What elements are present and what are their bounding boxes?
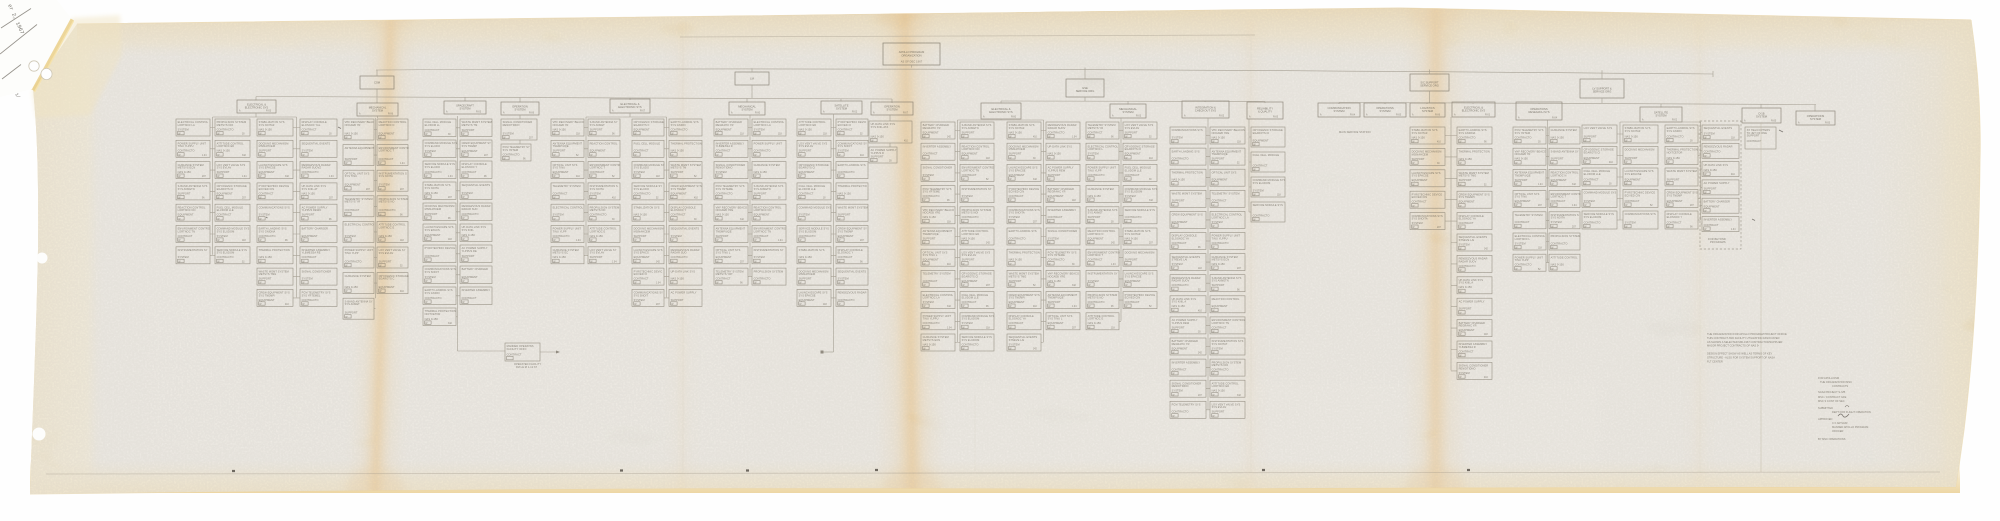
svg-text:RADAR SUO: RADAR SUO — [671, 251, 687, 255]
svg-text:TNEMPIUQE: TNEMPIUQE — [1515, 173, 1531, 177]
svg-text:ELECTRICAL &: ELECTRICAL & — [991, 107, 1010, 111]
svg-text:OFFICER: OFFICER — [1832, 429, 1844, 433]
svg-text:SYS GNIDN: SYS GNIDN — [1667, 129, 1682, 133]
svg-text:SYS NOITAZ: SYS NOITAZ — [259, 123, 275, 127]
svg-text:STABILIZATION SYS: STABILIZATION SYS — [799, 248, 825, 252]
svg-text:STNEVE LAI: STNEVE LAI — [1172, 258, 1188, 262]
svg-text:SYS EVLAV: SYS EVLAV — [590, 251, 605, 255]
svg-text:NAS 9-150: NAS 9-150 — [1009, 258, 1023, 262]
svg-text:SYS NOITAZ: SYS NOITAZ — [1125, 232, 1141, 236]
svg-text:GUIDANCE SYSTEM: GUIDANCE SYSTEM — [1088, 187, 1114, 191]
svg-text:TNEMPIUQE: TNEMPIUQE — [553, 144, 569, 148]
svg-text:SUPPORT: SUPPORT — [1009, 279, 1022, 283]
svg-text:SUPPORT: SUPPORT — [1212, 410, 1225, 414]
svg-text:SYSTEM: SYSTEM — [838, 149, 849, 153]
svg-text:EQUIPMENT: EQUIPMENT — [634, 127, 650, 131]
svg-text:R-06: R-06 — [388, 114, 394, 116]
svg-text:SYSTEM: SYSTEM — [754, 255, 765, 259]
svg-text:AC POWER SUPPLY: AC POWER SUPPLY — [1704, 181, 1730, 185]
svg-text:METSYS NO: METSYS NO — [1088, 296, 1104, 300]
svg-text:SUPPORT: SUPPORT — [590, 127, 603, 131]
svg-text:EQUIPMENT: EQUIPMENT — [553, 170, 569, 174]
svg-text:SYSTEM: SYSTEM — [425, 149, 436, 153]
svg-text:SYSTEM: SYSTEM — [886, 108, 898, 112]
svg-text:SYS ANNET: SYS ANNET — [345, 302, 361, 306]
svg-text:MAJOR PROJECT CONTRACTS OF NAS: MAJOR PROJECT CONTRACTS OF NAS 9- — [1707, 344, 1759, 348]
svg-text:EQUIPMENT: EQUIPMENT — [1125, 152, 1141, 156]
svg-text:CONTRACTO: CONTRACTO — [1704, 150, 1721, 154]
svg-text:C F ARTHUR: C F ARTHUR — [1832, 421, 1848, 425]
svg-text:CONTRACTO: CONTRACTO — [217, 127, 234, 131]
svg-text:SYSTEM: SYSTEM — [838, 277, 849, 281]
svg-text:LORTNOC T: LORTNOC T — [590, 166, 606, 170]
svg-text:1.04: 1.04 — [400, 163, 405, 165]
svg-text:LORTNOC N: LORTNOC N — [1088, 232, 1104, 236]
svg-text:MSINAHCEM: MSINAHCEM — [1009, 147, 1025, 151]
svg-text:SYSTEM: SYSTEM — [1412, 221, 1423, 225]
svg-text:SYSTEM: SYSTEM — [923, 173, 934, 177]
svg-text:1.04: 1.04 — [1111, 264, 1116, 266]
svg-text:CONTRACT: CONTRACT — [1515, 220, 1530, 224]
svg-text:DOCKING MECHANISM: DOCKING MECHANISM — [1625, 148, 1655, 152]
svg-text:MAIN SERVICE STATION: MAIN SERVICE STATION — [1339, 130, 1371, 134]
svg-text:SYS GNIDN: SYS GNIDN — [425, 291, 440, 295]
svg-text:ELUDOM LLE: ELUDOM LLE — [1125, 168, 1142, 172]
svg-text:THERMAL PROTECTION: THERMAL PROTECTION — [259, 248, 290, 252]
svg-text:NAS 9-150: NAS 9-150 — [1625, 134, 1639, 138]
svg-text:STNEVE LAI: STNEVE LAI — [1459, 238, 1475, 242]
svg-text:CONTRACT: CONTRACT — [1009, 321, 1024, 325]
svg-text:ELUDOM LLE: ELUDOM LLE — [217, 208, 234, 212]
svg-text:SUPPORT: SUPPORT — [1212, 283, 1225, 287]
svg-text:SYS EVLAV: SYS EVLAV — [962, 253, 977, 257]
svg-text:NAS 9-150: NAS 9-150 — [1172, 304, 1186, 308]
svg-text:SERVICE ORG: SERVICE ORG — [1420, 84, 1439, 88]
svg-text:DOCKING MECHANISM: DOCKING MECHANISM — [1125, 250, 1155, 254]
svg-text:OPTICAL UNIT SYS: OPTICAL UNIT SYS — [1212, 170, 1237, 174]
svg-text:METSYS NOI: METSYS NOI — [217, 123, 234, 127]
svg-text:SUPPORT: SUPPORT — [716, 234, 729, 238]
svg-text:CONTRACT: CONTRACT — [838, 255, 853, 259]
svg-text:1.04: 1.04 — [1731, 229, 1736, 231]
svg-text:CONTRACTO: CONTRACTO — [178, 149, 195, 153]
svg-text:SYSTEM: SYSTEM — [634, 170, 645, 174]
svg-text:SYS TINU L: SYS TINU L — [923, 253, 938, 257]
svg-text:R-07: R-07 — [640, 111, 646, 113]
svg-text:EQUIPMENT: EQUIPMENT — [716, 127, 732, 131]
svg-text:NOCAEB YRE: NOCAEB YRE — [1212, 131, 1230, 135]
svg-text:YLPPUS REW: YLPPUS REW — [1048, 168, 1066, 172]
svg-text:CONTRACTO: CONTRACTO — [1212, 368, 1229, 372]
svg-text:1.04: 1.04 — [242, 176, 247, 178]
svg-text:R-06: R-06 — [529, 113, 535, 115]
svg-text:SYS NOITA: SYS NOITA — [379, 174, 393, 178]
svg-text:SUPPORT: SUPPORT — [671, 170, 684, 174]
svg-text:SUPPORT: SUPPORT — [1459, 178, 1472, 182]
svg-text:SYS EVLAV: SYS EVLAV — [799, 144, 814, 148]
svg-text:SYS NOITA: SYS NOITA — [590, 187, 604, 191]
svg-text:SYS ELUDO: SYS ELUDO — [425, 144, 440, 148]
svg-text:NAS 9-150: NAS 9-150 — [1048, 279, 1062, 283]
svg-text:LORTNOC NO: LORTNOC NO — [178, 208, 196, 212]
svg-text:LORTNOC T: LORTNOC T — [379, 149, 395, 153]
svg-text:NAS 9-150: NAS 9-150 — [838, 191, 852, 195]
svg-text:EQUIPMENT: EQUIPMENT — [345, 183, 361, 187]
svg-text:METSYS YRT: METSYS YRT — [716, 272, 734, 276]
svg-text:CONTRACTO: CONTRACTO — [634, 191, 651, 195]
svg-text:EQUIPMENT: EQUIPMENT — [1412, 178, 1428, 182]
svg-text:SYSTEM: SYSTEM — [1379, 109, 1391, 113]
svg-text:SYS ANNETN: SYS ANNETN — [178, 187, 195, 191]
svg-text:R-04: R-04 — [1350, 115, 1356, 117]
svg-text:EGAROTS CI: EGAROTS CI — [1253, 131, 1270, 135]
svg-text:GUIDANCE SYSTEM: GUIDANCE SYSTEM — [754, 163, 780, 167]
svg-text:SYS TINU L: SYS TINU L — [1048, 317, 1063, 321]
svg-text:CONTRACT: CONTRACT — [1625, 199, 1640, 203]
svg-text:NAS 9-150: NAS 9-150 — [671, 277, 685, 281]
svg-text:NAS 9-150: NAS 9-150 — [1515, 157, 1529, 161]
svg-text:SUPPORT: SUPPORT — [1584, 134, 1597, 138]
svg-text:SYS TINU: SYS TINU — [1515, 195, 1528, 199]
svg-text:INVERTER ASSEMBLY: INVERTER ASSEMBLY — [1704, 218, 1733, 222]
svg-text:EGAROTS CI: EGAROTS CI — [962, 274, 979, 278]
svg-text:MECHANICAL: MECHANICAL — [1119, 107, 1137, 111]
svg-text:THE ORGANIZATION FOR APOLLO PR: THE ORGANIZATION FOR APOLLO PROGRAM PROJ… — [1707, 332, 1787, 336]
svg-text:CONTRACT: CONTRACT — [507, 352, 522, 356]
svg-text:PROGRAMS: PROGRAMS — [1710, 240, 1726, 244]
svg-text:THIS CONTRACT AND FACILITY UTI: THIS CONTRACT AND FACILITY UTILIZATION A… — [1707, 336, 1780, 340]
svg-text:EQUIPMENT: EQUIPMENT — [302, 234, 318, 238]
svg-text:1.04: 1.04 — [202, 155, 207, 157]
svg-text:TINU YLPPU: TINU YLPPU — [178, 144, 194, 148]
svg-text:SUPPORT: SUPPORT — [1667, 177, 1680, 181]
svg-text:SYSTEM: SYSTEM — [1422, 109, 1434, 113]
svg-text:CONTRACTO: CONTRACTO — [923, 321, 940, 325]
svg-text:METSYS ECN: METSYS ECN — [178, 166, 196, 170]
svg-text:SYS TNEMP: SYS TNEMP — [1667, 193, 1683, 197]
svg-text:NOCAEB YRE: NOCAEB YRE — [1048, 274, 1066, 278]
svg-text:SYS KNIL A: SYS KNIL A — [1172, 300, 1187, 304]
svg-text:SYS NOITA: SYS NOITA — [425, 186, 439, 190]
svg-text:NAS 9-150: NAS 9-150 — [345, 131, 359, 135]
svg-text:CONTRACT: CONTRACT — [425, 128, 440, 132]
svg-text:SYS SNOIT: SYS SNOIT — [425, 270, 440, 274]
svg-text:CONTRACTO: CONTRACTO — [671, 255, 688, 259]
svg-text:METSYS YR: METSYS YR — [1088, 126, 1104, 130]
svg-text:REGRAHC YR: REGRAHC YR — [716, 123, 734, 127]
svg-text:SYSTEM: SYSTEM — [1172, 262, 1183, 266]
svg-text:SERVICE ORG: SERVICE ORG — [1076, 89, 1095, 93]
svg-text:NAS 9-150: NAS 9-150 — [462, 233, 476, 237]
svg-text:ELUDOM LLE: ELUDOM LLE — [962, 296, 979, 300]
svg-text:WASTE MGMT SYSTEM: WASTE MGMT SYSTEM — [838, 205, 868, 209]
svg-text:EQUIPMENT: EQUIPMENT — [1088, 236, 1104, 240]
svg-text:& QUALITY: & QUALITY — [1258, 110, 1272, 114]
svg-text:LORTNOC TN: LORTNOC TN — [962, 168, 980, 172]
svg-text:TINU YLPPU: TINU YLPPU — [923, 317, 939, 321]
svg-text:SYS EPACSE: SYS EPACSE — [1625, 172, 1642, 176]
svg-text:CONTRACT: CONTRACT — [1125, 173, 1140, 177]
svg-text:SUPPORT: SUPPORT — [1172, 199, 1185, 203]
svg-text:EQUIPMENT: EQUIPMENT — [1212, 304, 1228, 308]
svg-text:TNEMPIUQE: TNEMPIUQE — [1048, 296, 1064, 300]
svg-text:1.04: 1.04 — [778, 240, 783, 242]
svg-text:METSYS ECN: METSYS ECN — [923, 338, 941, 342]
svg-text:METSYS TMG: METSYS TMG — [1459, 174, 1477, 178]
svg-text:NAS 9-150: NAS 9-150 — [1212, 135, 1226, 139]
svg-text:SYSTEM: SYSTEM — [514, 108, 526, 112]
svg-text:LORTNOC LA: LORTNOC LA — [178, 123, 195, 127]
svg-text:LORTNOC TN: LORTNOC TN — [1212, 321, 1230, 325]
svg-text:COMMAND MODULE SYS: COMMAND MODULE SYS — [799, 205, 832, 209]
svg-text:WASTE MGMT SYSTEM: WASTE MGMT SYSTEM — [1667, 169, 1697, 173]
svg-text:YLBMESSA R: YLBMESSA R — [1459, 345, 1476, 349]
svg-text:TINU YLPPU: TINU YLPPU — [1212, 236, 1228, 240]
svg-text:TINU YLPP: TINU YLPP — [1088, 168, 1102, 172]
svg-text:SYSTEM: SYSTEM — [754, 127, 765, 131]
svg-text:SYSTEM: SYSTEM — [1088, 152, 1099, 156]
svg-text:SUPPORT: SUPPORT — [671, 298, 684, 302]
svg-text:SUPPORT: SUPPORT — [1704, 186, 1717, 190]
svg-text:PYROTECHNIC DEVICE: PYROTECHNIC DEVICE — [425, 246, 456, 250]
svg-text:APOLLO PROGRAM: APOLLO PROGRAM — [899, 50, 925, 54]
svg-text:SYS ANNETN: SYS ANNETN — [754, 187, 771, 191]
svg-text:THERMAL PROTECTION: THERMAL PROTECTION — [671, 142, 702, 146]
svg-text:SYS EPACSE: SYS EPACSE — [1412, 174, 1429, 178]
svg-text:SYS ELUDO: SYS ELUDO — [425, 165, 440, 169]
svg-text:ELOSNOC Y: ELOSNOC Y — [838, 251, 854, 255]
svg-text:EQUIPMENT: EQUIPMENT — [754, 213, 770, 217]
svg-text:CONTRACTO: CONTRACTO — [1515, 135, 1532, 139]
svg-text:R-03: R-03 — [476, 112, 482, 114]
svg-text:SYSTEM: SYSTEM — [1088, 279, 1099, 283]
svg-text:METSYS TM: METSYS TM — [462, 123, 478, 127]
svg-text:FLT CENTER: FLT CENTER — [1707, 359, 1723, 363]
svg-text:CONTRACTO: CONTRACTO — [799, 234, 816, 238]
svg-text:SUPPORT: SUPPORT — [1009, 152, 1022, 156]
svg-text:R-05: R-05 — [1396, 115, 1402, 117]
svg-text:POWER SUPPLY UNIT: POWER SUPPLY UNIT — [754, 142, 783, 146]
svg-text:TNEMPIUQE: TNEMPIUQE — [923, 232, 939, 236]
svg-text:TINU YLPP: TINU YLPP — [1515, 258, 1529, 262]
svg-text:EQUIPMENT: EQUIPMENT — [1172, 346, 1188, 350]
svg-text:EQUIPMENT: EQUIPMENT — [379, 285, 395, 289]
svg-text:ANTENNA EQUIPMENT: ANTENNA EQUIPMENT — [345, 146, 375, 150]
svg-text:S-BAND ANTENNA SY: S-BAND ANTENNA SY — [1551, 149, 1579, 153]
svg-text:ELOSNOC Y: ELOSNOC Y — [1667, 215, 1683, 219]
svg-text:RADAR SUO: RADAR SUO — [462, 207, 478, 211]
svg-text:REGRAHC YR: REGRAHC YR — [1459, 324, 1477, 328]
svg-text:CONTRACTO: CONTRACTO — [1212, 241, 1229, 245]
svg-text:ECIVED CIN: ECIVED CIN — [1625, 193, 1641, 197]
svg-text:EQUIPMENT: EQUIPMENT — [1667, 199, 1683, 203]
svg-text:NAS 9-150: NAS 9-150 — [1667, 156, 1681, 160]
svg-text:EGAROTS CI: EGAROTS CI — [217, 187, 234, 191]
svg-text:EQUIPMENT: EQUIPMENT — [1584, 156, 1600, 160]
svg-text:SYSTEM: SYSTEM — [1009, 342, 1020, 346]
svg-text:TELEMETRY SYSTEM: TELEMETRY SYSTEM — [553, 184, 581, 188]
svg-text:PROPULSION SYSTEM: PROPULSION SYSTEM — [1551, 234, 1581, 238]
svg-text:SUPPORT: SUPPORT — [962, 258, 975, 262]
svg-text:RENOITIDNO: RENOITIDNO — [1459, 366, 1476, 370]
svg-text:NAS 9-150: NAS 9-150 — [259, 127, 273, 131]
svg-text:EQUIPMENT: EQUIPMENT — [178, 213, 194, 217]
svg-text:CONTRACTO: CONTRACTO — [671, 127, 688, 131]
svg-text:SUPPORT: SUPPORT — [259, 277, 272, 281]
svg-text:CONTRACT: CONTRACT — [553, 191, 568, 195]
svg-text:ECIVED CI: ECIVED CI — [838, 123, 852, 127]
svg-text:ELUDOM LLE: ELUDOM LLE — [1584, 172, 1601, 176]
svg-text:SYSTEM: SYSTEM — [425, 275, 436, 279]
svg-text:CONTRACTO: CONTRACTO — [217, 255, 234, 259]
svg-text:STNEVE LAI: STNEVE LAI — [1009, 338, 1025, 342]
svg-text:LORTNOC NO: LORTNOC NO — [962, 147, 980, 151]
svg-text:CONTRACT: CONTRACT — [1459, 221, 1474, 225]
svg-text:SYS ELUDO: SYS ELUDO — [634, 166, 649, 170]
svg-text:SYS SNOIT: SYS SNOIT — [838, 144, 853, 148]
svg-text:ELUDOM LL: ELUDOM LL — [425, 123, 441, 127]
svg-text:CONTRACTO: CONTRACTO — [754, 277, 771, 281]
svg-text:RENOITIDNO: RENOITIDNO — [1172, 384, 1189, 388]
svg-text:SUPPORT: SUPPORT — [259, 149, 272, 153]
svg-text:CONTRACTO: CONTRACTO — [962, 342, 979, 346]
svg-text:R-05: R-05 — [1825, 123, 1831, 125]
svg-text:SYSTEM: SYSTEM — [923, 300, 934, 304]
svg-text:SYS ELUDOM: SYS ELUDOM — [962, 317, 980, 321]
svg-text:LORTNOC L: LORTNOC L — [1088, 147, 1104, 151]
svg-text:SYS YRTEM: SYS YRTEM — [1515, 131, 1531, 135]
svg-text:1.04: 1.04 — [656, 283, 661, 285]
svg-text:NAS 9-150: NAS 9-150 — [1125, 236, 1139, 240]
svg-text:EQUIPMENT: EQUIPMENT — [838, 234, 854, 238]
svg-text:RENOITIDNO: RENOITIDNO — [716, 166, 733, 170]
svg-text:CONTRACTO: CONTRACTO — [425, 296, 442, 300]
svg-text:CONTRACT: CONTRACT — [1747, 139, 1762, 143]
svg-text:SYSTEM: SYSTEM — [1810, 117, 1822, 121]
svg-text:CONTRACT: CONTRACT — [178, 234, 193, 238]
svg-text:TINU YLPP: TINU YLPP — [345, 251, 359, 255]
svg-text:SYS EVLAV: SYS EVLAV — [217, 166, 232, 170]
svg-text:NAS 9-150: NAS 9-150 — [345, 285, 359, 289]
svg-text:METSYS NOI: METSYS NOI — [1212, 363, 1229, 367]
svg-text:MANNED APOLLO PROGRAM: MANNED APOLLO PROGRAM — [1832, 425, 1868, 429]
svg-text:EGAROTS CI: EGAROTS CI — [799, 166, 816, 170]
svg-text:MSINAHCEM: MSINAHCEM — [1412, 152, 1428, 156]
svg-text:CONTRACT: CONTRACT — [590, 170, 605, 174]
svg-text:SYSTEM: SYSTEM — [1172, 135, 1183, 139]
svg-text:R-02: R-02 — [852, 112, 858, 114]
svg-text:CONTRACT: CONTRACT — [1253, 163, 1268, 167]
svg-text:SEQUENTIAL EVENTS: SEQUENTIAL EVENTS — [462, 183, 491, 187]
svg-text:EQUIPMENT: EQUIPMENT — [634, 255, 650, 259]
svg-text:ELOSNOC YA: ELOSNOC YA — [1459, 217, 1477, 221]
svg-text:SUBMITTED: SUBMITTED — [1818, 406, 1833, 410]
svg-text:1.04: 1.04 — [1572, 205, 1577, 207]
svg-text:1.04: 1.04 — [1072, 137, 1077, 139]
svg-text:EQUIPMENT: EQUIPMENT — [1704, 205, 1720, 209]
svg-text:AS SHOWN A SELECTED MID-1967 C: AS SHOWN A SELECTED MID-1967 CONTRACTOR/… — [1707, 340, 1782, 344]
svg-text:FUEL CELL MODULE: FUEL CELL MODULE — [1253, 153, 1280, 157]
svg-text:APPROVED: APPROVED — [1818, 417, 1833, 421]
svg-text:RADAR SUOVZ: RADAR SUOVZ — [302, 166, 322, 170]
svg-text:LORTNOC ED: LORTNOC ED — [217, 144, 235, 148]
svg-text:EQUIPMENT: EQUIPMENT — [1459, 200, 1475, 204]
svg-text:CONTRACT: CONTRACT — [1704, 223, 1719, 227]
svg-text:SUPPORT: SUPPORT — [302, 213, 315, 217]
svg-text:ELOSNOC YA: ELOSNOC YA — [1172, 236, 1190, 240]
svg-text:CONTRACTO: CONTRACTO — [716, 191, 733, 195]
svg-text:SYS TINU: SYS TINU — [345, 174, 358, 178]
svg-text:CONTRACT: CONTRACT — [1048, 215, 1063, 219]
svg-text:NAS 9-150: NAS 9-150 — [716, 213, 730, 217]
svg-text:ELUDOM LLE: ELUDOM LLE — [799, 187, 816, 191]
svg-text:EGAROTS CI: EGAROTS CI — [1125, 147, 1142, 151]
svg-text:NAS 9-150: NAS 9-150 — [1212, 262, 1226, 266]
svg-text:METSYS NO: METSYS NO — [590, 208, 606, 212]
svg-text:NAS 9-150: NAS 9-150 — [1009, 130, 1023, 134]
svg-text:THERMAL PROTECTION: THERMAL PROTECTION — [1009, 250, 1040, 254]
svg-text:CSM: CSM — [374, 81, 381, 85]
svg-text:CONTRACT: CONTRACT — [923, 279, 938, 283]
svg-text:CONTRACT: CONTRACT — [1412, 200, 1427, 204]
svg-text:SEQUENTIAL EVENTS: SEQUENTIAL EVENTS — [1704, 126, 1733, 130]
svg-text:NAS 9-150: NAS 9-150 — [923, 342, 937, 346]
svg-text:SYS EPACSE: SYS EPACSE — [799, 293, 816, 297]
svg-text:SERVICE MODULE SYS: SERVICE MODULE SYS — [1253, 203, 1284, 207]
svg-text:NAS 9-150: NAS 9-150 — [1551, 135, 1565, 139]
svg-text:SYS ELUDOM: SYS ELUDOM — [217, 229, 235, 233]
svg-text:ELOSNOC Y: ELOSNOC Y — [671, 208, 687, 212]
svg-text:CONTRACTO: CONTRACTO — [302, 170, 319, 174]
svg-text:FUEL CELL MODULE: FUEL CELL MODULE — [634, 142, 661, 146]
svg-text:SUPPORT: SUPPORT — [462, 128, 475, 132]
svg-text:REGRAHC YR: REGRAHC YR — [1172, 342, 1190, 346]
svg-text:METSYS ECN: METSYS ECN — [1212, 258, 1230, 262]
svg-text:SUPPORT: SUPPORT — [379, 259, 392, 263]
svg-text:SYS YRTEME: SYS YRTEME — [923, 190, 941, 194]
svg-text:METSYS TMG: METSYS TMG — [259, 272, 277, 276]
svg-text:EQUIPMENT: EQUIPMENT — [1253, 138, 1269, 142]
svg-text:CONTRACT: CONTRACT — [716, 149, 731, 153]
svg-text:ATTITUDE CONTROL: ATTITUDE CONTROL — [1551, 255, 1579, 259]
svg-text:EQUIPMENT: EQUIPMENT — [1459, 328, 1475, 332]
svg-text:SYSTEM: SYSTEM — [302, 149, 313, 153]
svg-text:SYSTEM: SYSTEM — [1459, 242, 1470, 246]
svg-text:WASTE MGMT SYSTEM: WASTE MGMT SYSTEM — [1172, 192, 1202, 196]
svg-text:SYS ELUDO: SYS ELUDO — [634, 187, 649, 191]
svg-text:MECHANICAL: MECHANICAL — [369, 105, 387, 109]
svg-text:SYSTEM: SYSTEM — [799, 213, 810, 217]
svg-text:METSYS YR: METSYS YR — [345, 200, 361, 204]
svg-text:NAS 9-150: NAS 9-150 — [553, 255, 567, 259]
svg-text:CONTRACTO: CONTRACTO — [1009, 236, 1026, 240]
svg-text:SYSTEM: SYSTEM — [372, 109, 384, 113]
svg-text:SYS YRTEMEL: SYS YRTEMEL — [302, 293, 321, 297]
svg-text:SYSTEM: SYSTEM — [1515, 241, 1526, 245]
svg-text:SYSTEM: SYSTEM — [259, 213, 270, 217]
svg-text:OPERATIONS: OPERATIONS — [1376, 106, 1394, 110]
svg-text:BATTERY CHARGER: BATTERY CHARGER — [462, 267, 488, 271]
svg-text:MECHANICAL: MECHANICAL — [738, 104, 756, 108]
svg-text:INTEGRATION &: INTEGRATION & — [1195, 105, 1216, 109]
svg-text:1.04: 1.04 — [612, 261, 617, 263]
svg-text:SYSTEM: SYSTEM — [590, 191, 601, 195]
svg-text:INSTRUMENTATION SY: INSTRUMENTATION SY — [178, 248, 208, 252]
svg-text:1.04: 1.04 — [947, 327, 952, 329]
svg-text:1.04: 1.04 — [329, 176, 334, 178]
svg-text:ELOSNOC YAL: ELOSNOC YAL — [302, 123, 321, 127]
svg-text:NAS 9-150: NAS 9-150 — [1459, 285, 1473, 289]
